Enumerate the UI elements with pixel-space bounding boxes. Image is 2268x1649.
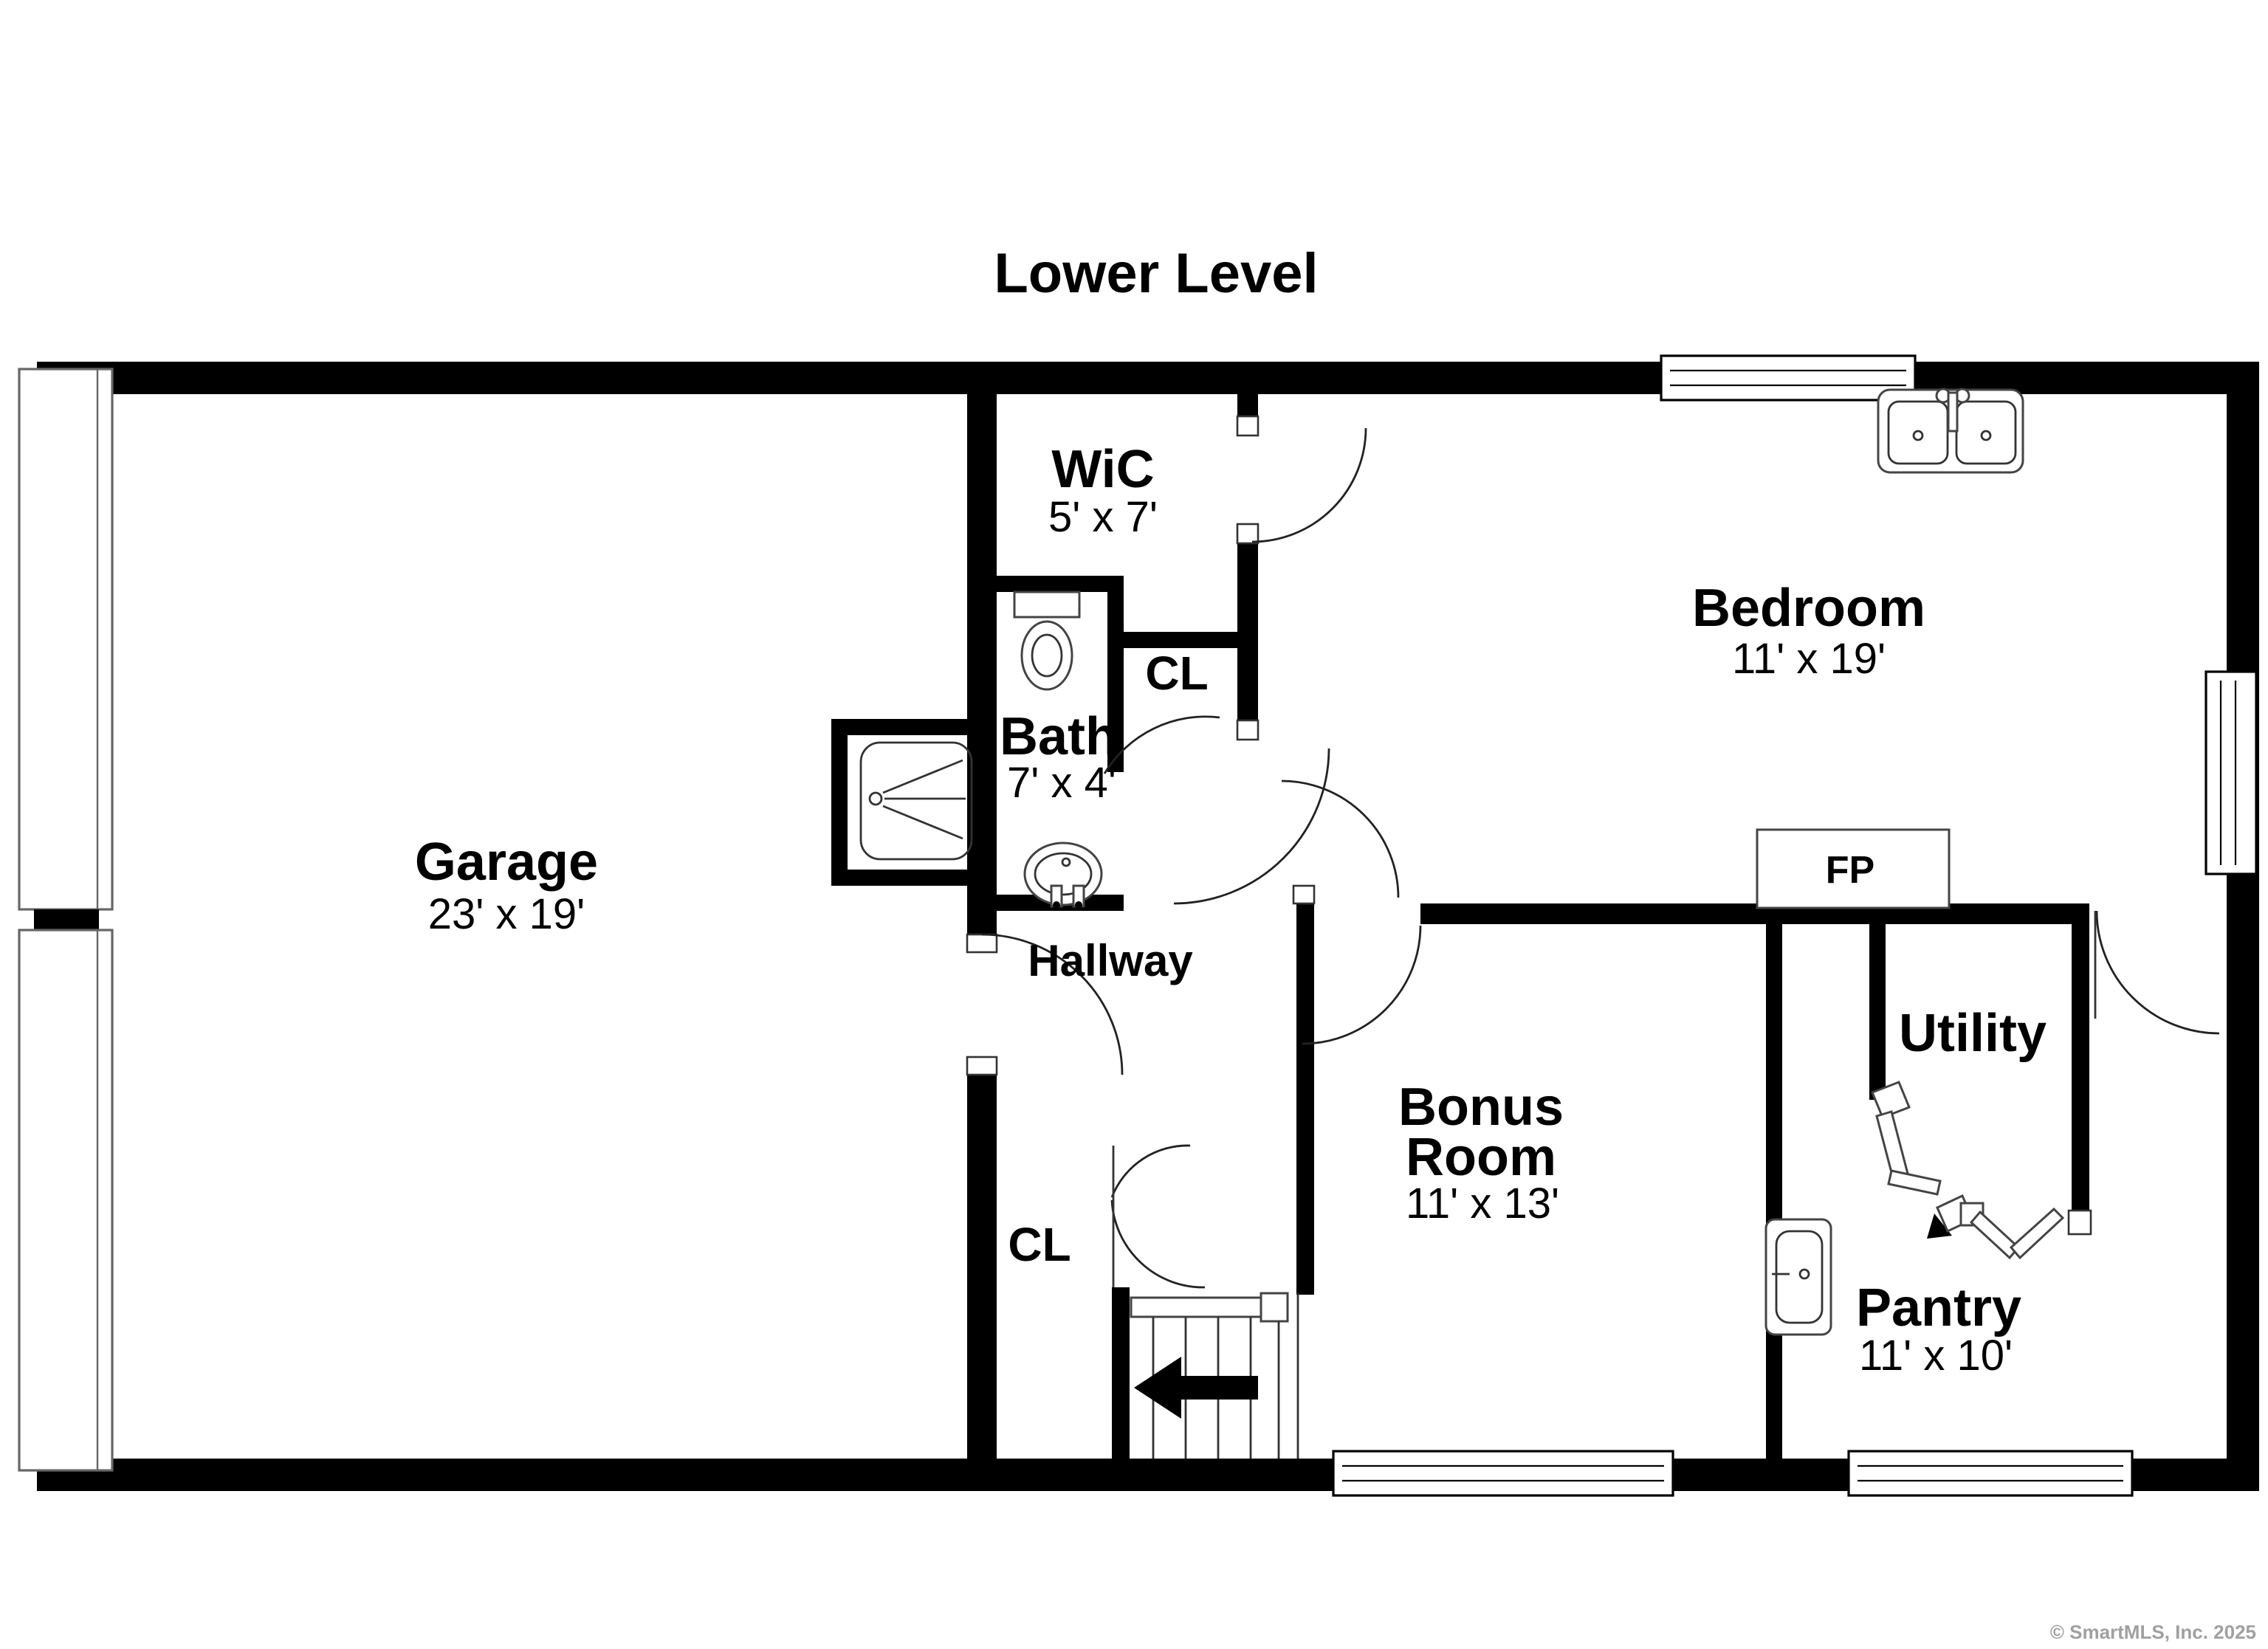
room-label-pantry: Pantry (1856, 1278, 2021, 1338)
door-arcs (982, 428, 2219, 1287)
stairs-icon (1131, 1293, 1298, 1459)
double-sink-icon (1878, 389, 2023, 472)
floor-plan-page: Lower Level (0, 0, 2268, 1649)
room-dims-pantry: 11' x 10' (1859, 1332, 2013, 1380)
room-label-bonus-line2: Room (1406, 1128, 1556, 1187)
watermark: © SmartMLS, Inc. 2025 (2050, 1621, 2256, 1643)
pantry-sink-icon (1766, 1219, 1831, 1335)
room-label-wic: WiC (1051, 440, 1154, 499)
window-icon-top (1661, 356, 1915, 400)
room-label-garage: Garage (415, 833, 598, 892)
room-label-bedroom: Bedroom (1692, 579, 1925, 638)
room-dims-wic: 5' x 7' (1048, 493, 1158, 541)
room-label-hallway: Hallway (1028, 936, 1193, 985)
garage-door-icon (19, 369, 112, 1470)
room-label-bath: Bath (1000, 707, 1118, 766)
window-icon-bottom-left (1333, 1451, 1673, 1495)
room-label-cl-upper: CL (1145, 647, 1208, 700)
room-dims-bedroom: 11' x 19' (1732, 635, 1886, 683)
bifold-door-icon (1872, 1082, 2063, 1258)
room-dims-garage: 23' x 19' (428, 890, 585, 938)
shower-icon (861, 743, 972, 859)
room-dims-bonus: 11' x 13' (1406, 1180, 1559, 1228)
window-icon-bottom-right (1849, 1451, 2132, 1495)
floor-plan-svg: Lower Level (0, 0, 2268, 1649)
room-label-cl-lower: CL (1008, 1218, 1071, 1271)
fireplace-box: FP (1757, 830, 1949, 908)
room-label-utility: Utility (1899, 1004, 2047, 1063)
page-title: Lower Level (994, 242, 1318, 305)
fireplace-label: FP (1826, 849, 1874, 892)
window-icon-right (2206, 672, 2256, 874)
toilet-icon (1014, 592, 1079, 689)
room-dims-bath: 7' x 4' (1007, 759, 1116, 807)
